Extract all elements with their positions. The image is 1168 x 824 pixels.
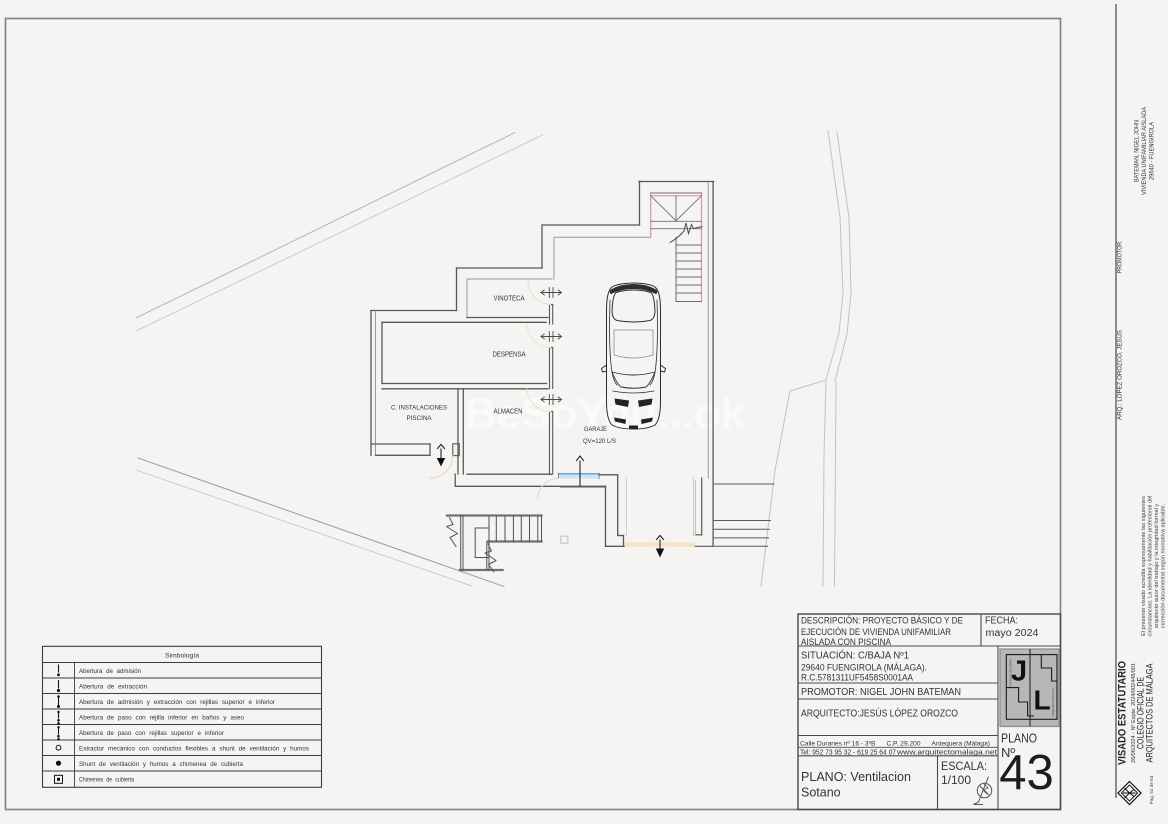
svg-text:EJECUCIÓN DE VIVIENDA UNIFAMIL: EJECUCIÓN DE VIVIENDA UNIFAMILIAR xyxy=(801,627,951,637)
svg-text:ARQUITECTURA JLO: ARQUITECTURA JLO xyxy=(1051,687,1055,716)
svg-text:mayo 2024: mayo 2024 xyxy=(986,628,1040,639)
svg-text:Abertura de admisión: Abertura de admisión xyxy=(79,668,141,675)
svg-text:Extractor mecánico con conduct: Extractor mecánico con conductos flexibl… xyxy=(79,745,309,752)
svg-text:ARQUITECTOS DE MÁLAGA: ARQUITECTOS DE MÁLAGA xyxy=(1145,664,1155,763)
svg-text:SITUACIÓN: C/BAJA Nº1: SITUACIÓN: C/BAJA Nº1 xyxy=(801,651,909,662)
svg-text:VIVIENDA UNIFAMILIAR AISLADA: VIVIENDA UNIFAMILIAR AISLADA xyxy=(1141,106,1148,195)
svg-text:43: 43 xyxy=(999,746,1054,800)
svg-text:PROMOTOR: NIGEL JOHN BATEMAN: PROMOTOR: NIGEL JOHN BATEMAN xyxy=(801,687,961,698)
svg-text:Chimenea de cubierta: Chimenea de cubierta xyxy=(79,776,134,783)
svg-text:L: L xyxy=(1034,685,1051,716)
svg-text:Calle Duranes nº 16 - 3ºB: Calle Duranes nº 16 - 3ºB C.P. 29.200 An… xyxy=(800,741,990,748)
svg-text:ALMACEN: ALMACEN xyxy=(494,409,523,416)
svg-text:Abertura de extracción: Abertura de extracción xyxy=(79,683,147,690)
svg-text:DESCRIPCIÓN: PROYECTO BÁSICO Y: DESCRIPCIÓN: PROYECTO BÁSICO Y DE xyxy=(801,616,963,626)
svg-text:VINOTECA: VINOTECA xyxy=(494,296,525,303)
svg-text:ARQUITECTO:JESÚS LÓPEZ OROZCO: ARQUITECTO:JESÚS LÓPEZ OROZCO xyxy=(801,709,958,720)
svg-text:DESPENSA: DESPENSA xyxy=(493,352,526,359)
svg-text:arquitecto autor del trabajo y: arquitecto autor del trabajo y la integr… xyxy=(1154,504,1160,629)
svg-text:El presente visado acredita ex: El presente visado acredita expresamente… xyxy=(1141,496,1147,636)
svg-text:VISADO ESTATUTARIO: VISADO ESTATUTARIO xyxy=(1117,661,1129,765)
svg-text:Tel: 952 73 95 32 - 619 25 64: Tel: 952 73 95 32 - 619 25 64 07 xyxy=(800,750,896,757)
svg-text:29640 FUENGIROLA (MÁLAGA).: 29640 FUENGIROLA (MÁLAGA). xyxy=(801,663,927,673)
svg-text:Shunt de ventilación y humos a: Shunt de ventilación y humos a chimenea … xyxy=(79,761,243,768)
svg-text:J: J xyxy=(1011,656,1027,688)
svg-text:Abertura de paso con rejilla i: Abertura de paso con rejilla inferior en… xyxy=(79,714,244,721)
svg-text:ESCALA:: ESCALA: xyxy=(941,759,987,773)
svg-text:PLANO: PLANO xyxy=(1001,731,1037,746)
svg-text:Simbología: Simbología xyxy=(165,653,199,660)
svg-text:Abertura de paso con rejillas: Abertura de paso con rejillas superior e… xyxy=(79,730,225,737)
svg-text:FECHA:: FECHA: xyxy=(985,616,1018,627)
svg-text:GARAJE: GARAJE xyxy=(584,426,607,433)
svg-text:Sotano: Sotano xyxy=(801,786,841,800)
svg-text:QV=120 L/S: QV=120 L/S xyxy=(583,438,616,445)
svg-text:BATEMAN, NIGEL JOHN: BATEMAN, NIGEL JOHN xyxy=(1134,120,1141,182)
svg-text:AISLADA CON PISCINA: AISLADA CON PISCINA xyxy=(801,637,892,647)
svg-text:www.arquitectomalaga.net: www.arquitectomalaga.net xyxy=(896,750,997,757)
svg-text:PISCINA: PISCINA xyxy=(407,415,433,422)
svg-text:R.C.5781311UF5458S0001AA: R.C.5781311UF5458S0001AA xyxy=(801,673,913,683)
svg-text:29640 - FUENGIROLA: 29640 - FUENGIROLA xyxy=(1149,121,1156,180)
svg-text:circunstancias: La identidad y: circunstancias: La identidad y habilitac… xyxy=(1148,496,1154,637)
svg-text:C. INSTALACIONES: C. INSTALACIONES xyxy=(391,405,448,412)
svg-text:ARQUITECTURA JLO: ARQUITECTURA JLO xyxy=(1008,659,1012,688)
svg-text:corrección documental según no: corrección documental según normativa ap… xyxy=(1161,503,1167,628)
svg-text:PROMOTOR:: PROMOTOR: xyxy=(1117,240,1124,273)
svg-text:PLANO: Ventilacion: PLANO: Ventilacion xyxy=(801,770,911,784)
svg-text:Abertura de admisión y extracc: Abertura de admisión y extracción con re… xyxy=(79,699,276,706)
svg-text:Pag. 52 de 63: Pag. 52 de 63 xyxy=(1149,775,1154,804)
svg-text:1/100: 1/100 xyxy=(941,773,971,787)
svg-text:ARQ.: LÓPEZ OROZCO, JESÚS: ARQ.: LÓPEZ OROZCO, JESÚS xyxy=(1115,329,1124,420)
